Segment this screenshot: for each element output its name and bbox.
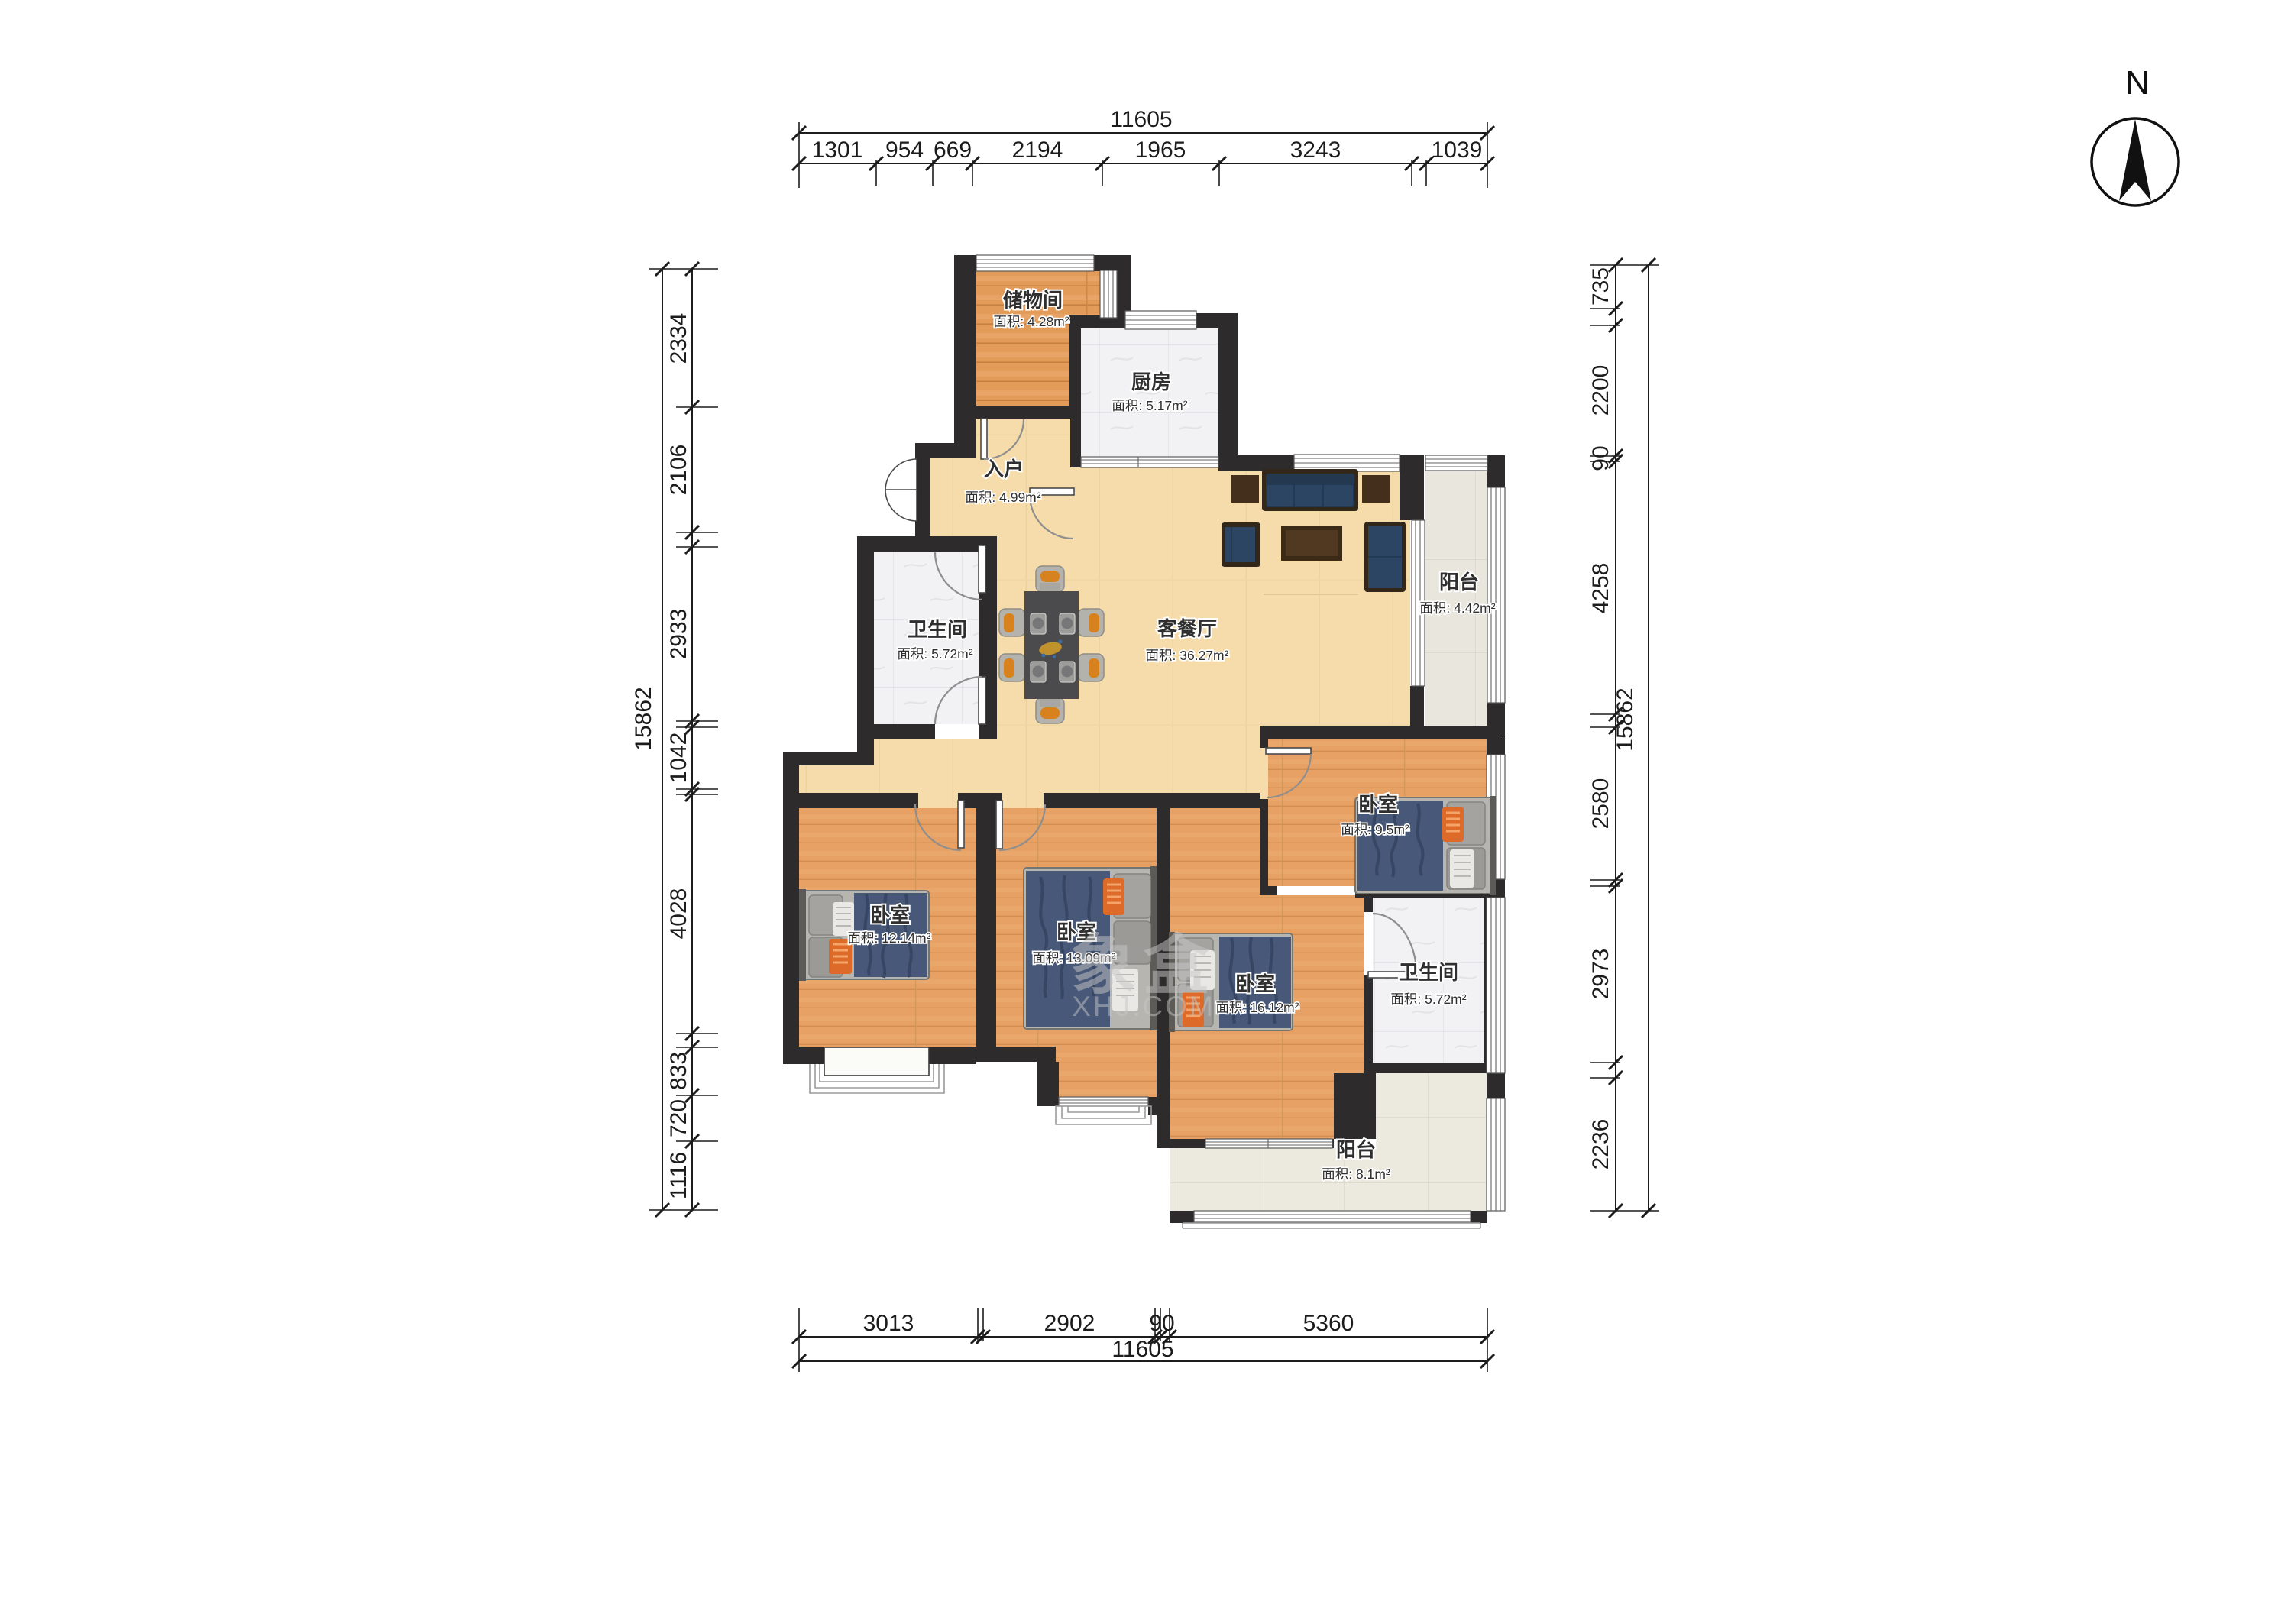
svg-text:卫生间: 卫生间: [1399, 961, 1458, 984]
svg-text:669: 669: [934, 137, 972, 163]
svg-text:卧室: 卧室: [1358, 793, 1398, 816]
svg-text:5360: 5360: [1303, 1311, 1354, 1336]
svg-text:2200: 2200: [1588, 365, 1613, 416]
svg-text:N: N: [2125, 64, 2150, 102]
svg-text:面积: 5.72m²: 面积: 5.72m²: [1390, 992, 1466, 1007]
svg-text:1965: 1965: [1135, 137, 1186, 163]
svg-text:入户: 入户: [984, 458, 1024, 480]
svg-text:11605: 11605: [1110, 107, 1172, 132]
svg-text:2580: 2580: [1588, 778, 1613, 830]
svg-text:735: 735: [1588, 267, 1613, 306]
svg-text:XHJ.COM: XHJ.COM: [1072, 991, 1215, 1022]
svg-text:2194: 2194: [1012, 137, 1063, 163]
svg-text:卧室: 卧室: [870, 904, 910, 927]
svg-text:2106: 2106: [666, 445, 691, 496]
svg-text:客餐厅: 客餐厅: [1157, 617, 1217, 640]
svg-text:1039: 1039: [1432, 137, 1483, 163]
svg-text:2973: 2973: [1588, 949, 1613, 1000]
svg-text:面积: 9.5m²: 面积: 9.5m²: [1341, 822, 1409, 837]
svg-text:面积: 4.42m²: 面积: 4.42m²: [1419, 600, 1495, 616]
svg-text:1116: 1116: [666, 1152, 691, 1199]
svg-text:1301: 1301: [812, 137, 863, 163]
svg-text:954: 954: [885, 137, 924, 163]
svg-text:90: 90: [1588, 445, 1613, 471]
svg-text:面积: 36.27m²: 面积: 36.27m²: [1146, 648, 1229, 663]
svg-text:2334: 2334: [666, 313, 691, 364]
svg-text:90: 90: [1149, 1311, 1174, 1336]
svg-text:卫生间: 卫生间: [908, 618, 967, 641]
svg-text:15862: 15862: [1613, 687, 1638, 751]
svg-text:储物间: 储物间: [1003, 289, 1063, 312]
svg-text:720: 720: [666, 1099, 691, 1137]
svg-text:厨房: 厨房: [1131, 370, 1171, 393]
svg-text:3013: 3013: [863, 1311, 914, 1336]
svg-text:4028: 4028: [666, 888, 691, 940]
svg-text:面积: 12.14m²: 面积: 12.14m²: [848, 930, 931, 946]
svg-text:15862: 15862: [631, 687, 656, 750]
svg-text:阳台: 阳台: [1439, 571, 1479, 594]
svg-text:面积: 4.99m²: 面积: 4.99m²: [965, 490, 1040, 505]
svg-text:4258: 4258: [1588, 563, 1613, 614]
svg-text:面积: 8.1m²: 面积: 8.1m²: [1322, 1166, 1390, 1182]
svg-text:面积: 5.72m²: 面积: 5.72m²: [897, 646, 972, 662]
svg-text:1042: 1042: [666, 733, 691, 784]
svg-text:833: 833: [666, 1052, 691, 1090]
svg-text:2236: 2236: [1588, 1119, 1613, 1170]
svg-text:面积: 16.12m²: 面积: 16.12m²: [1216, 1000, 1299, 1015]
svg-text:11605: 11605: [1112, 1337, 1173, 1362]
svg-text:阳台: 阳台: [1336, 1138, 1376, 1161]
svg-text:2902: 2902: [1044, 1311, 1095, 1336]
svg-text:面积: 5.17m²: 面积: 5.17m²: [1112, 398, 1187, 413]
svg-text:3243: 3243: [1290, 137, 1341, 163]
svg-text:2933: 2933: [666, 609, 691, 660]
svg-text:面积: 4.28m²: 面积: 4.28m²: [993, 314, 1069, 329]
svg-text:卧室: 卧室: [1235, 972, 1275, 995]
